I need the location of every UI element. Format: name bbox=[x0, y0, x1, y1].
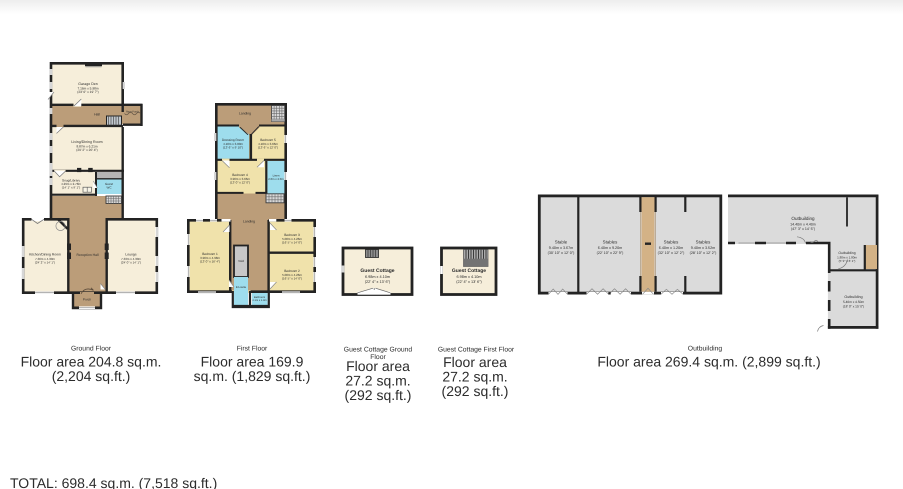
svg-text:Hall: Hall bbox=[94, 113, 100, 117]
svg-text:Outbuilding: Outbuilding bbox=[791, 216, 815, 221]
svg-text:9.40m x 3.67m: 9.40m x 3.67m bbox=[549, 246, 573, 250]
svg-text:(5' 9" x 6' 1"): (5' 9" x 6' 1") bbox=[839, 259, 856, 263]
svg-text:(22' 4" x 13' 6"): (22' 4" x 13' 6") bbox=[365, 280, 391, 284]
svg-text:9.40m x 3.52m: 9.40m x 3.52m bbox=[691, 246, 715, 250]
svg-text:Guest Cottage First Floor: Guest Cottage First Floor bbox=[438, 347, 515, 354]
svg-text:(18' 0" x 15' 0"): (18' 0" x 15' 0") bbox=[843, 305, 864, 309]
svg-text:Outbuilding: Outbuilding bbox=[838, 251, 855, 255]
svg-text:(13' 0" x 12' 0"): (13' 0" x 12' 0") bbox=[230, 181, 250, 185]
svg-text:Living/Dining Room: Living/Dining Room bbox=[71, 140, 102, 144]
svg-text:(16' 5" x 14' 0"): (16' 5" x 14' 0") bbox=[282, 277, 302, 281]
svg-text:Ground Floor: Ground Floor bbox=[71, 346, 112, 353]
svg-text:Rear Porch: Rear Porch bbox=[126, 111, 140, 114]
svg-text:(292 sq.ft.): (292 sq.ft.) bbox=[442, 383, 509, 399]
svg-text:(2,204 sq.ft.): (2,204 sq.ft.) bbox=[52, 368, 131, 384]
svg-text:6.40m x 9.20m: 6.40m x 9.20m bbox=[598, 246, 622, 250]
svg-text:(32' 10" x 12' 2"): (32' 10" x 12' 2") bbox=[658, 251, 685, 255]
svg-text:Lounge: Lounge bbox=[125, 253, 136, 257]
svg-text:Guest Cottage Ground: Guest Cottage Ground bbox=[344, 347, 413, 354]
svg-text:(47' 3" x 14' 5"): (47' 3" x 14' 5") bbox=[791, 227, 815, 231]
svg-text:(28' 10" x 12' 2"): (28' 10" x 12' 2") bbox=[690, 251, 717, 255]
svg-text:(13' 0" x 16' 4"): (13' 0" x 16' 4") bbox=[200, 260, 220, 264]
svg-text:En-suite: En-suite bbox=[236, 285, 247, 289]
svg-text:Stable: Stable bbox=[555, 240, 568, 245]
svg-text:Landing: Landing bbox=[239, 112, 251, 116]
svg-text:(13' 6" x 9' 10"): (13' 6" x 9' 10") bbox=[223, 146, 243, 150]
svg-text:Outbuilding: Outbuilding bbox=[844, 295, 862, 299]
svg-text:TOTAL: 698.4 sq.m. (7,518 sq.f: TOTAL: 698.4 sq.m. (7,518 sq.ft.) bbox=[10, 475, 217, 489]
svg-text:WC: WC bbox=[107, 186, 113, 190]
svg-text:(24' 2" x 14' 1"): (24' 2" x 14' 1") bbox=[35, 261, 55, 265]
svg-text:Porch: Porch bbox=[83, 298, 92, 302]
svg-text:(30' 10" x 12' 0"): (30' 10" x 12' 0") bbox=[548, 251, 575, 255]
svg-text:(29' 2" x 20' 4"): (29' 2" x 20' 4") bbox=[76, 148, 97, 152]
svg-text:Guest Cottage: Guest Cottage bbox=[360, 268, 394, 274]
svg-text:Garage Den: Garage Den bbox=[78, 82, 98, 86]
svg-text:Void: Void bbox=[238, 259, 244, 263]
svg-text:Guest Cottage: Guest Cottage bbox=[452, 268, 486, 274]
svg-text:Floor area 269.4 sq.m. (2,899: Floor area 269.4 sq.m. (2,899 sq.ft.) bbox=[597, 354, 820, 370]
svg-text:Stables: Stables bbox=[603, 240, 618, 245]
svg-text:1m: 1m bbox=[646, 242, 651, 246]
svg-text:(16' 5" x 14' 0"): (16' 5" x 14' 0") bbox=[282, 241, 302, 245]
svg-text:First Floor: First Floor bbox=[237, 346, 268, 353]
svg-text:2.0m x 2.0m: 2.0m x 2.0m bbox=[268, 177, 284, 181]
svg-text:6.98m x 4.10m: 6.98m x 4.10m bbox=[365, 275, 390, 279]
svg-text:(13' 6" x 12' 0"): (13' 6" x 12' 0") bbox=[258, 146, 278, 150]
svg-text:Outbuilding: Outbuilding bbox=[688, 346, 723, 353]
svg-text:6.98m x 4.10m: 6.98m x 4.10m bbox=[456, 275, 481, 279]
svg-text:14.40m x 4.40m: 14.40m x 4.40m bbox=[790, 223, 816, 227]
svg-text:(22' 4" x 13' 6"): (22' 4" x 13' 6") bbox=[456, 280, 482, 284]
svg-text:(292 sq.ft.): (292 sq.ft.) bbox=[345, 387, 412, 403]
svg-text:sq.m. (1,829 sq.ft.): sq.m. (1,829 sq.ft.) bbox=[194, 368, 311, 384]
svg-text:Reception Hall: Reception Hall bbox=[76, 253, 98, 257]
svg-text:Kitchen/Dining Room: Kitchen/Dining Room bbox=[29, 253, 61, 257]
svg-text:Stables: Stables bbox=[664, 240, 679, 245]
svg-text:(24' 0" x 14' 1"): (24' 0" x 14' 1") bbox=[121, 261, 141, 265]
svg-text:6.40m x 1.20m: 6.40m x 1.20m bbox=[659, 246, 683, 250]
svg-text:2.1m x 1.9m: 2.1m x 1.9m bbox=[252, 299, 266, 302]
svg-text:Landing: Landing bbox=[243, 220, 255, 224]
svg-text:5.40m x 4.50m: 5.40m x 4.50m bbox=[843, 300, 864, 304]
svg-text:(23' 6" x 19' 7"): (23' 6" x 19' 7") bbox=[77, 90, 98, 94]
svg-text:(14' 1" x 9' 1"): (14' 1" x 9' 1") bbox=[62, 186, 80, 190]
svg-text:Stables: Stables bbox=[696, 240, 711, 245]
svg-text:(22' 10" x 22' 9"): (22' 10" x 22' 9") bbox=[597, 251, 624, 255]
